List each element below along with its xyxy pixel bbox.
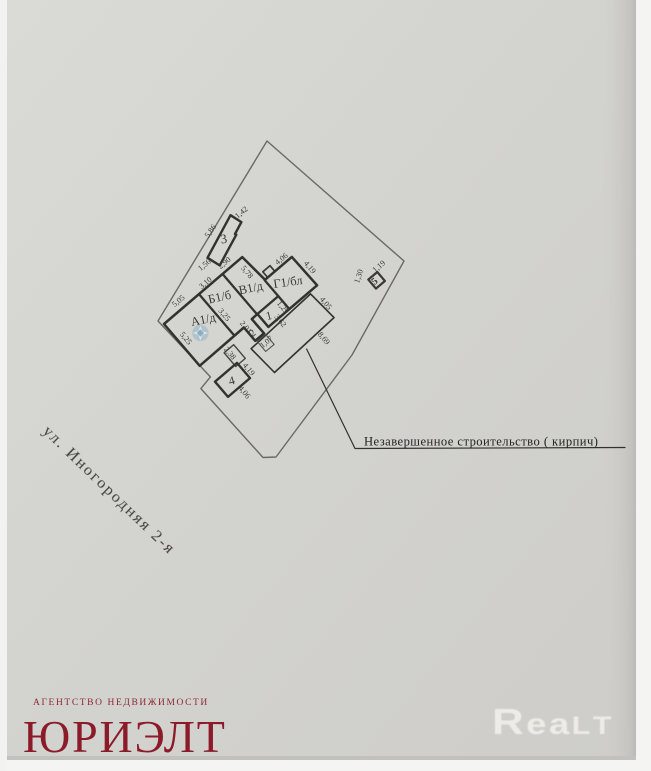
svg-text:Незавершенное строительство (: Незавершенное строительство ( кирпич)	[364, 435, 598, 449]
